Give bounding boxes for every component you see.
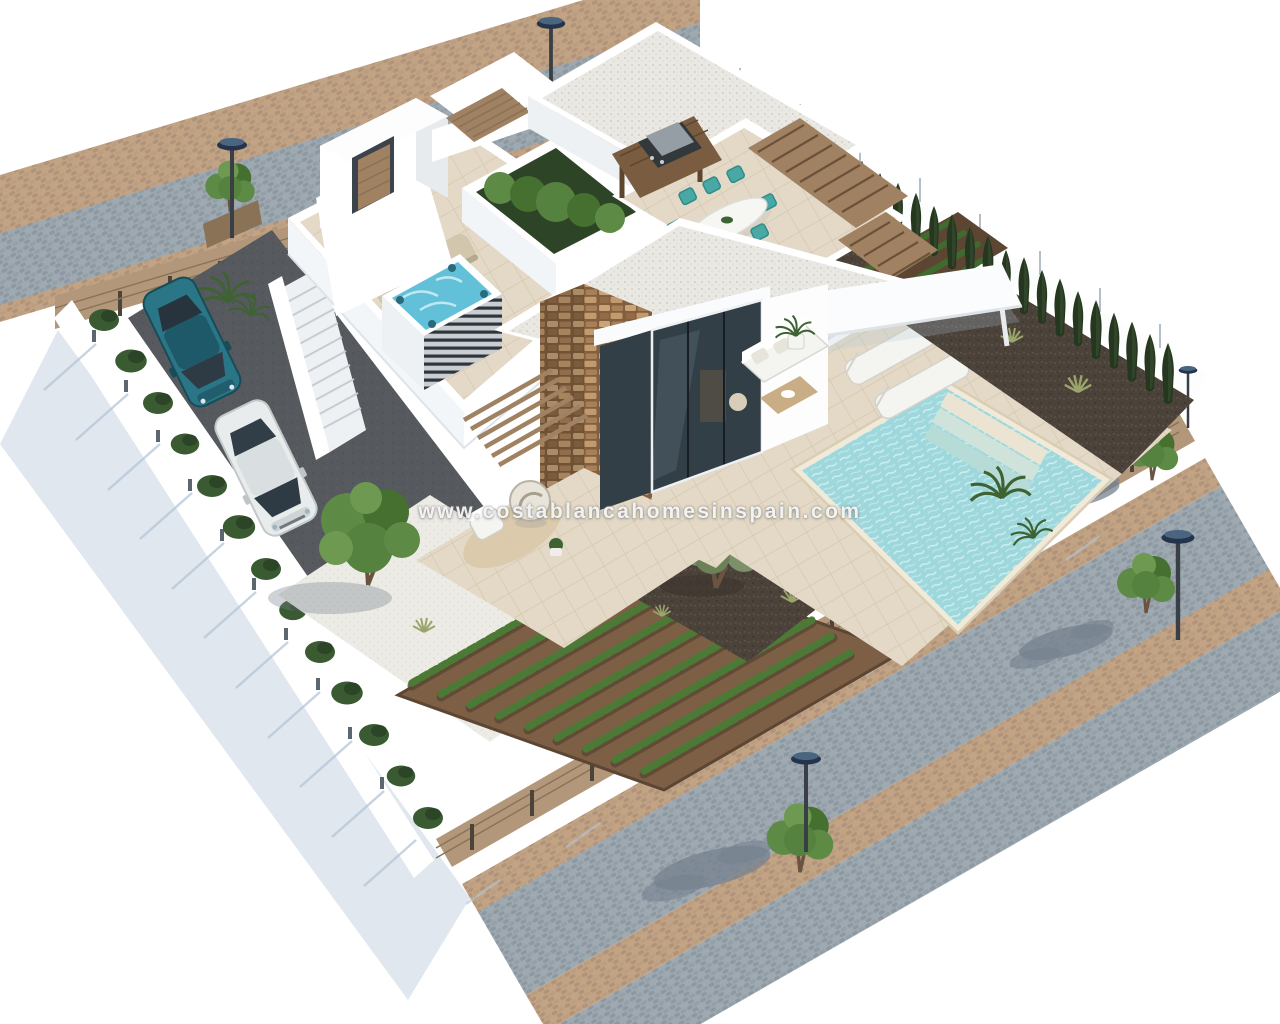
render-canvas: www.costablancahomesinspain.com xyxy=(0,0,1280,1024)
watermark: www.costablancahomesinspain.com xyxy=(418,500,861,524)
